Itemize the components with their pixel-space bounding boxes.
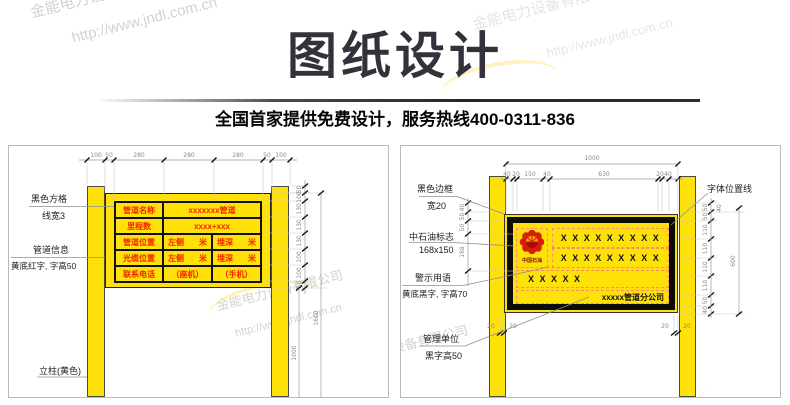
page: 金能电力设备有限公司 http://www.jndl.com.cn 金能电力设备… <box>0 0 790 405</box>
dim-value: 50 <box>702 297 709 305</box>
dim-value: 20 <box>661 323 669 330</box>
dim-value-height: 600 <box>730 255 737 267</box>
dim-value: 50 <box>702 213 709 221</box>
right-drawing-panel: http://www.jndl.com.cn 金能电力设备有限公司 <box>400 145 781 398</box>
page-title: 图纸设计 <box>0 24 790 88</box>
dim-value: 110 <box>702 224 709 236</box>
dim-value: 280 <box>232 152 244 159</box>
dim-value: 50 <box>459 213 466 221</box>
watermark-company: 金能电力设备有限公司 <box>28 0 179 22</box>
dim-value-total: 1600 <box>313 310 320 325</box>
dim-value: 20 <box>509 323 517 330</box>
dim-value: 130 <box>296 203 303 215</box>
dim-value: 50 <box>105 152 113 159</box>
dim-value: 110 <box>702 280 709 292</box>
dim-value: 100 <box>296 267 303 279</box>
dim-value: 40 <box>543 171 551 178</box>
dim-value: 630 <box>598 171 610 178</box>
dim-value: 20 <box>656 171 664 178</box>
dim-value: 130 <box>296 219 303 231</box>
dim-value: 130 <box>296 235 303 247</box>
page-subtitle: 全国首家提供免费设计，服务热线400-0311-836 <box>0 105 790 130</box>
dim-value-post: 1000 <box>291 345 298 360</box>
dim-value: 110 <box>702 261 709 273</box>
dim-value: 50 <box>459 224 466 232</box>
dim-value: 20 <box>512 171 520 178</box>
dim-value: 40 <box>459 204 466 212</box>
dim-value: 100 <box>296 251 303 263</box>
dim-value: 280 <box>183 152 195 159</box>
dim-value: 100 <box>275 152 287 159</box>
dim-value: 150 <box>524 171 536 178</box>
dim-value: 50 <box>263 152 271 159</box>
left-dimension-lines: 100 50 280 280 280 50 100 <box>9 146 388 397</box>
title-divider <box>95 99 700 102</box>
dim-value: 40 <box>503 171 511 178</box>
dim-value: 20 <box>487 323 495 330</box>
right-dimension-lines: 1000 40 20 150 40 630 20 <box>401 146 781 398</box>
dim-value: 280 <box>133 152 145 159</box>
dim-value: 50 <box>702 204 709 212</box>
dim-value: 40 <box>702 306 709 314</box>
dim-value: 100 <box>296 191 303 203</box>
left-drawing-panel: 金能电力设备有限公司 http://www.jndl.com.cn 管道名称 x… <box>8 145 389 398</box>
dim-value: 110 <box>702 243 709 255</box>
dim-value: 20 <box>683 323 691 330</box>
dim-value: 100 <box>90 152 102 159</box>
dim-value: 40 <box>716 204 723 212</box>
dim-value-width: 1000 <box>584 155 599 162</box>
dim-value: 40 <box>664 171 672 178</box>
dim-value: 168 <box>459 246 466 258</box>
